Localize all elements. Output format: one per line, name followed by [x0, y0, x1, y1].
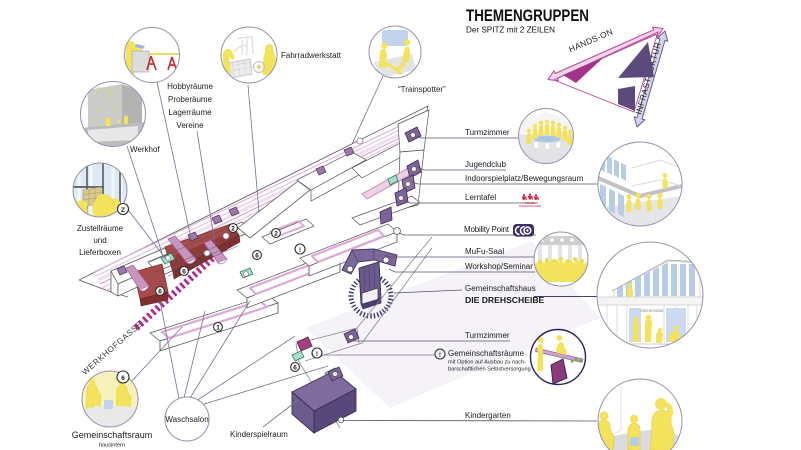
svg-text:6: 6 [158, 289, 162, 296]
svg-text:6: 6 [255, 253, 259, 260]
svg-text:MuFu-Saal: MuFu-Saal [465, 247, 504, 256]
svg-text:1: 1 [216, 325, 220, 332]
svg-text:Turmzimmer: Turmzimmer [465, 128, 510, 137]
svg-text:Lagerräume: Lagerräume [168, 108, 212, 117]
svg-text:THEMENGRUPPEN: THEMENGRUPPEN [466, 6, 589, 25]
svg-text:!: ! [316, 351, 318, 358]
svg-text:mit Option auf Ausbau zu nach-: mit Option auf Ausbau zu nach- [448, 360, 526, 366]
svg-text:Kindergarten: Kindergarten [465, 411, 511, 420]
svg-text:Fahrradwerkstatt: Fahrradwerkstatt [281, 51, 342, 60]
svg-text:Werkhof: Werkhof [130, 145, 160, 154]
svg-text:Gemeinschaftshaus: Gemeinschaftshaus [465, 284, 536, 293]
svg-text:Zustellräume: Zustellräume [77, 224, 124, 233]
svg-text:Waschsalon: Waschsalon [165, 415, 208, 424]
svg-text:Workshop/Seminar: Workshop/Seminar [465, 262, 533, 271]
svg-text:2: 2 [274, 231, 278, 238]
svg-text:Proberäume: Proberäume [168, 95, 213, 104]
svg-text:6: 6 [121, 375, 125, 382]
svg-text:Kinderspielraum: Kinderspielraum [230, 430, 288, 439]
svg-text:6: 6 [182, 269, 186, 276]
svg-text:und: und [93, 236, 106, 245]
svg-text:2: 2 [231, 226, 235, 233]
svg-text:Z: Z [121, 207, 125, 214]
svg-text:barschaftlichen Selbstversorgu: barschaftlichen Selbstversorgung [448, 367, 531, 373]
svg-text:hausintern: hausintern [99, 443, 125, 449]
svg-text:Mobility Point: Mobility Point [464, 225, 510, 234]
svg-text:Turmzimmer: Turmzimmer [465, 331, 510, 340]
svg-text:DIE DREHSCHEIBE: DIE DREHSCHEIBE [465, 295, 545, 305]
svg-text:Gemeinschaftsräume: Gemeinschaftsräume [448, 349, 525, 358]
svg-text:6: 6 [293, 365, 297, 372]
svg-text:KINDERFREUNDE: KINDERFREUNDE [519, 204, 542, 208]
svg-text:DREHSCHEIBE: DREHSCHEIBE [640, 309, 663, 313]
svg-text:Lerntafel: Lerntafel [465, 193, 496, 202]
svg-text:!: ! [299, 247, 301, 254]
svg-text:Der SPITZ mit 2 ZEILEN: Der SPITZ mit 2 ZEILEN [466, 25, 555, 35]
svg-text:“Trainspotter”: “Trainspotter” [398, 85, 446, 94]
svg-text:Hobbyräume: Hobbyräume [167, 82, 213, 91]
svg-text:Vereine: Vereine [176, 121, 204, 130]
svg-text:Jugendclub: Jugendclub [465, 160, 506, 169]
svg-text:Indoorspielplatz/Bewegungsraum: Indoorspielplatz/Bewegungsraum [465, 174, 584, 183]
svg-text:Lieferboxen: Lieferboxen [79, 248, 121, 257]
svg-text:Gemeinschaftsraum: Gemeinschaftsraum [72, 430, 153, 440]
svg-text:!: ! [439, 352, 441, 359]
